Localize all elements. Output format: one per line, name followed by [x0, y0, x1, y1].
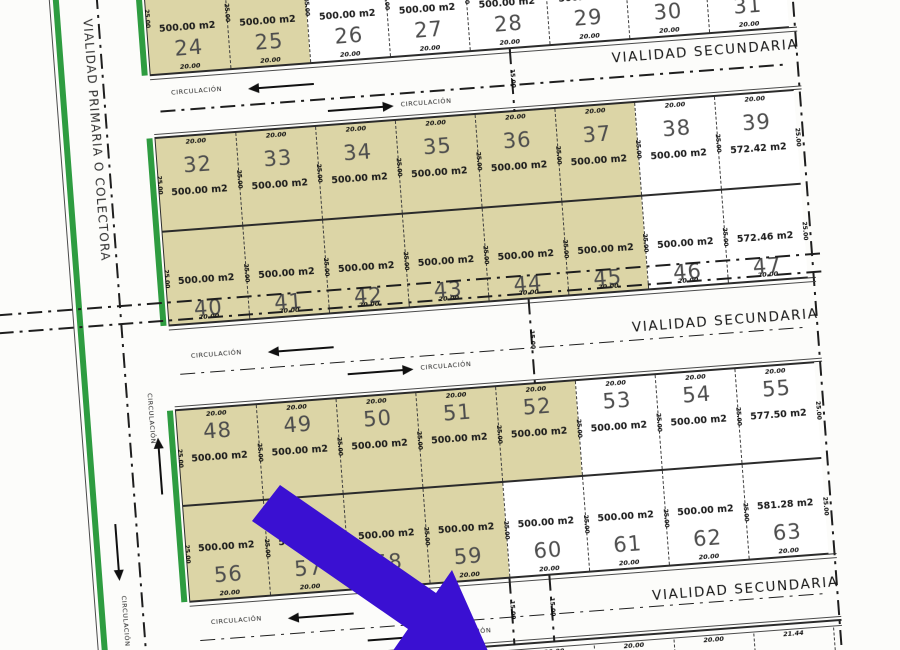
lot-number: 59 [428, 543, 508, 570]
lot-area: 500.00 m2 [659, 413, 738, 428]
lot-area: 500.00 m2 [186, 539, 266, 554]
lot-number: 55 [736, 375, 816, 402]
lot-number: 60 [508, 537, 588, 564]
side-dimension: 25.00 [554, 146, 561, 165]
lot-cell-41: 41500.00 m220.00 [242, 221, 329, 319]
side-dimension: 25.00 [223, 3, 230, 22]
lot-area: 500.00 m2 [547, 0, 626, 5]
lot-area: 500.00 m2 [166, 272, 246, 287]
lot-area: 500.00 m2 [467, 0, 546, 11]
side-dimension: 25.00 [235, 170, 242, 189]
lane-arrow-up-icon [158, 449, 164, 495]
side-dimension: 25.00 [801, 221, 808, 240]
side-dimension: 25.00 [575, 419, 582, 438]
lot-cell-55: 55577.50 m220.00 [734, 363, 821, 463]
side-dimension: 25.00 [335, 437, 342, 456]
lot-number: 62 [667, 525, 747, 552]
lane-arrow-left-icon [279, 346, 334, 352]
lot-cell-54: 54500.00 m220.00 [655, 369, 742, 469]
lot-number: 33 [238, 146, 318, 173]
lane-arrow-left-icon [259, 83, 314, 89]
lot-area: 500.00 m2 [308, 7, 387, 22]
lot-area: 500.00 m2 [326, 260, 405, 275]
side-dimension: 25.00 [814, 401, 821, 420]
circulation-label: CIRCULACIÓN [211, 615, 262, 625]
lot-cell-26: 26500.00 m220.00 [302, 0, 390, 62]
side-dimension: 25.00 [322, 257, 329, 276]
lot-cell-58: 58500.00 m220.00 [343, 489, 430, 589]
lot-number: 52 [497, 393, 577, 420]
lot-area: 500.00 m2 [499, 425, 578, 440]
lot-area: 500.00 m2 [147, 19, 227, 34]
lot-area: 581.28 m2 [745, 497, 824, 512]
circulation-label: CIRCULACIÓN [420, 361, 471, 371]
lot-number: 61 [588, 531, 668, 558]
lot-cell-35: 35500.00 m220.00 [395, 115, 482, 213]
side-dimension: 25.00 [502, 521, 509, 540]
lane-arrow-right-icon [368, 635, 423, 641]
lot-number: 39 [716, 110, 796, 137]
lot-area: 500.00 m2 [426, 521, 505, 536]
lot-area: 500.00 m2 [179, 449, 259, 464]
lot-cell-40: 40500.00 m220.00 [163, 227, 250, 325]
lot-number: 24 [148, 35, 229, 62]
lot-number: 50 [337, 405, 417, 432]
lot-number: 54 [657, 381, 737, 408]
lot-area: 500.00 m2 [260, 443, 339, 458]
lot-number: 57 [268, 555, 348, 582]
lane-arrow-down-icon [114, 524, 120, 570]
circulation-label: CIRCULACIÓN [146, 393, 156, 444]
lot-cell-34: 34500.00 m220.00 [315, 121, 402, 219]
lane-arrow-right-icon [328, 106, 383, 112]
lot-area: 500.00 m2 [486, 248, 565, 263]
street-width-dimension: 15.00 [528, 330, 535, 349]
lot-area: 500.00 m2 [320, 171, 399, 186]
side-dimension: 25.00 [462, 0, 469, 4]
lot-cell-63: 63581.28 m220.00 [742, 459, 829, 559]
lot-cell-44: 44500.00 m220.00 [482, 203, 569, 301]
lot-number: 31 [708, 0, 788, 20]
lot-area: 500.00 m2 [579, 419, 658, 434]
side-dimension: 25.00 [721, 227, 728, 246]
lot-area: 572.46 m2 [725, 230, 804, 245]
lot-area: 500.00 m2 [666, 503, 745, 518]
lot-cell-25: 25500.00 m220.00 [222, 0, 310, 68]
lot-number: 63 [747, 519, 827, 546]
lot-area: 500.00 m2 [387, 1, 466, 16]
lot-number: 25 [229, 29, 309, 56]
side-dimension: 25.00 [474, 152, 481, 171]
lot-cell-39: 39572.42 m220.00 [714, 91, 801, 189]
lot-number: 37 [557, 122, 637, 149]
lane-arrow-left-icon [299, 612, 354, 618]
side-dimension: 25.00 [495, 425, 502, 444]
side-dimension: 25.00 [641, 233, 648, 252]
lot-cell-24: 24500.00 m220.00 [142, 0, 230, 74]
side-dimension: 25.00 [256, 443, 263, 462]
lot-cell-36: 36500.00 m220.00 [475, 109, 562, 207]
side-dimension: 25.00 [794, 128, 801, 147]
lot-number: 29 [548, 5, 628, 32]
lot-number: 30 [628, 0, 708, 26]
lot-number: 36 [477, 128, 557, 155]
circulation-label: CIRCULACIÓN [171, 86, 222, 96]
lot-cell-27: 27500.00 m220.00 [382, 0, 470, 56]
lot-area: 500.00 m2 [247, 266, 326, 281]
lot-area: 500.00 m2 [267, 533, 346, 548]
side-dimension: 25.00 [395, 158, 402, 177]
lot-cell-29: 29500.00 m220.00 [541, 0, 629, 44]
lot-number: 26 [309, 23, 389, 50]
circulation-label: CIRCULACIÓN [191, 349, 242, 359]
lot-number: 51 [417, 399, 497, 426]
lot-area: 572.42 m2 [719, 141, 798, 156]
lot-number: 56 [188, 561, 269, 588]
lot-number: 32 [157, 152, 238, 179]
lot-area: 500.00 m2 [559, 153, 638, 168]
lot-cell-50: 50500.00 m220.00 [336, 393, 423, 493]
side-dimension: 25.00 [263, 539, 270, 558]
side-dimension: 25.00 [302, 0, 309, 16]
lot-cell-42: 42500.00 m220.00 [322, 215, 409, 313]
lot-number: 49 [258, 411, 338, 438]
lot-cell-59: 59500.00 m220.00 [423, 483, 510, 583]
lot-cell-53: 53500.00 m220.00 [575, 375, 662, 475]
lot-number: 35 [397, 134, 477, 161]
side-dimension: 25.00 [662, 509, 669, 528]
lot-number: 53 [577, 387, 657, 414]
lot-cell-33: 33500.00 m220.00 [235, 127, 322, 225]
lot-number: 27 [388, 17, 468, 44]
side-dimension: 25.00 [634, 140, 641, 159]
lot-area: 500.00 m2 [400, 165, 479, 180]
lot-area: 500.00 m2 [586, 509, 665, 524]
lot-area: 500.00 m2 [566, 242, 645, 257]
lot-area: 500.00 m2 [347, 527, 426, 542]
street-width-dimension: 15.00 [508, 68, 515, 87]
lot-cell-28: 28500.00 m220.00 [461, 0, 549, 50]
side-dimension: 25.00 [315, 164, 322, 183]
side-dimension: 25.00 [382, 0, 389, 10]
subdivision-plan-canvas: VIALIDAD PRIMARIA O COLECTORA CIRCULACIÓ… [0, 0, 900, 650]
side-dimension: 25.00 [582, 515, 589, 534]
side-dimension: 25.00 [415, 431, 422, 450]
street-name-label: VIALIDAD SECUNDARIA [632, 308, 819, 335]
lot-cell-49: 49500.00 m220.00 [256, 399, 343, 499]
lot-area: 500.00 m2 [506, 515, 585, 530]
side-dimension: 25.00 [714, 134, 721, 153]
lot-cell-30: 30500.00 m220.00 [621, 0, 709, 38]
lot-number: 48 [177, 417, 258, 444]
lot-area: 500.00 m2 [240, 177, 319, 192]
circulation-label: CIRCULACIÓN [440, 627, 491, 637]
side-dimension: 25.00 [734, 407, 741, 426]
lot-cell-32: 32500.00 m220.00 [156, 133, 243, 231]
circulation-label: CIRCULACIÓN [400, 98, 451, 108]
lot-cell-56: 56500.00 m220.00 [183, 501, 270, 601]
lot-area: 500.00 m2 [639, 147, 718, 162]
side-dimension: 25.00 [402, 251, 409, 270]
lot-area: 500.00 m2 [479, 159, 558, 174]
street-width-dimension: 15.00 [508, 600, 515, 619]
side-dimension: 25.00 [655, 413, 662, 432]
lot-area: 500.00 m2 [406, 254, 485, 269]
lot-cell-46: 46500.00 m220.00 [641, 191, 728, 289]
side-dimension: 25.00 [481, 245, 488, 264]
lot-cell-51: 51500.00 m220.00 [415, 387, 502, 487]
circulation-label: CIRCULACIÓN [120, 595, 130, 646]
lot-cell-48: 48500.00 m220.00 [176, 405, 263, 505]
street-width-dimension: 15.00 [548, 597, 555, 616]
lot-area: 500.00 m2 [340, 437, 419, 452]
lot-number: 58 [348, 549, 428, 576]
lot-cell-61: 61500.00 m220.00 [582, 471, 669, 571]
lot-cell-47: 47572.46 m220.00 [721, 185, 808, 283]
lot-cell-60: 60500.00 m220.00 [502, 477, 589, 577]
lot-cell-57: 57500.00 m220.00 [263, 495, 350, 595]
lot-area: 500.00 m2 [420, 431, 499, 446]
lot-number: 28 [468, 11, 548, 38]
lot-area: 577.50 m2 [739, 407, 818, 422]
lot-area: 500.00 m2 [646, 236, 725, 251]
lot-number: 34 [317, 140, 397, 167]
lot-cell-37: 37500.00 m220.00 [554, 103, 641, 201]
lot-cell-43: 43500.00 m220.00 [402, 209, 489, 307]
lot-cell-62: 62500.00 m220.00 [662, 465, 749, 565]
side-dimension: 25.00 [242, 263, 249, 282]
side-dimension: 25.00 [821, 497, 828, 516]
side-dimension: 25.00 [343, 533, 350, 552]
lot-area: 500.00 m2 [228, 13, 307, 28]
lot-area: 500.00 m2 [159, 183, 239, 198]
side-dimension: 25.00 [422, 527, 429, 546]
plan: VIALIDAD PRIMARIA O COLECTORA CIRCULACIÓ… [3, 0, 900, 650]
lot-cell-52: 52500.00 m220.00 [495, 381, 582, 481]
lot-cell-38: 38500.00 m220.00 [634, 97, 721, 195]
lot-number: 38 [637, 116, 717, 143]
lot-cell-45: 45500.00 m220.00 [561, 197, 648, 295]
lot-boundary-line [833, 627, 841, 650]
side-dimension: 25.00 [561, 239, 568, 258]
side-dimension: 25.00 [741, 503, 748, 522]
lane-arrow-right-icon [348, 369, 403, 375]
